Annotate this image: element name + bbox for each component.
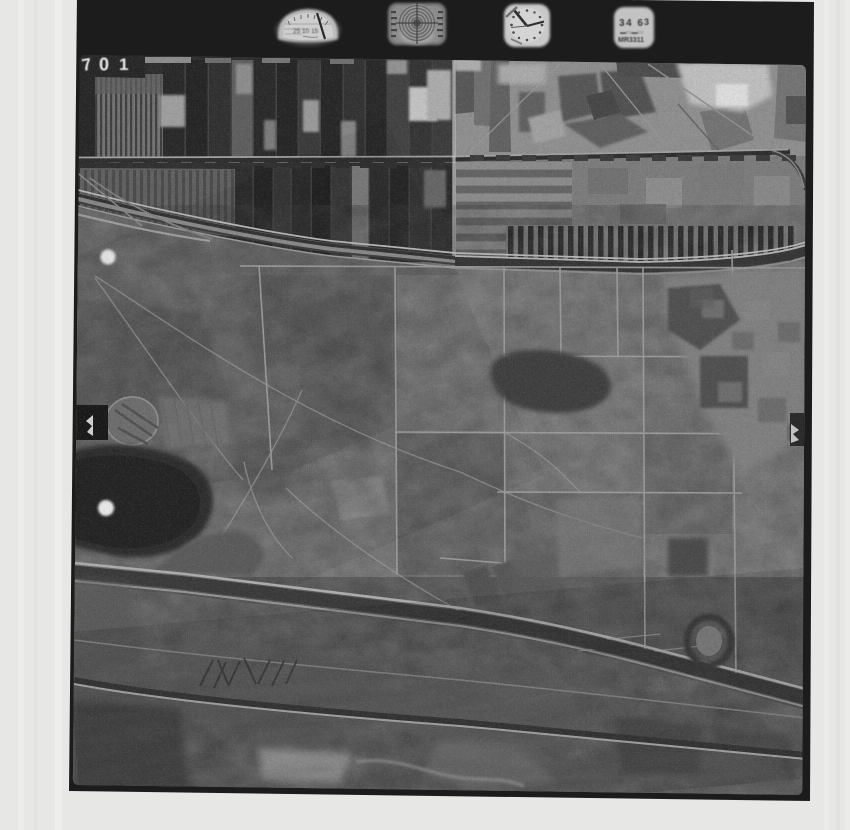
svg-text:25 10 15: 25 10 15 (293, 28, 319, 35)
svg-text:3: 3 (644, 17, 649, 27)
svg-text:1: 1 (119, 55, 128, 74)
svg-text:MR3311: MR3311 (618, 37, 644, 44)
svg-text:0: 0 (99, 55, 109, 75)
svg-text:▬▭▬▭: ▬▭▬▭ (620, 30, 644, 36)
svg-text:34 6: 34 6 (619, 18, 644, 29)
